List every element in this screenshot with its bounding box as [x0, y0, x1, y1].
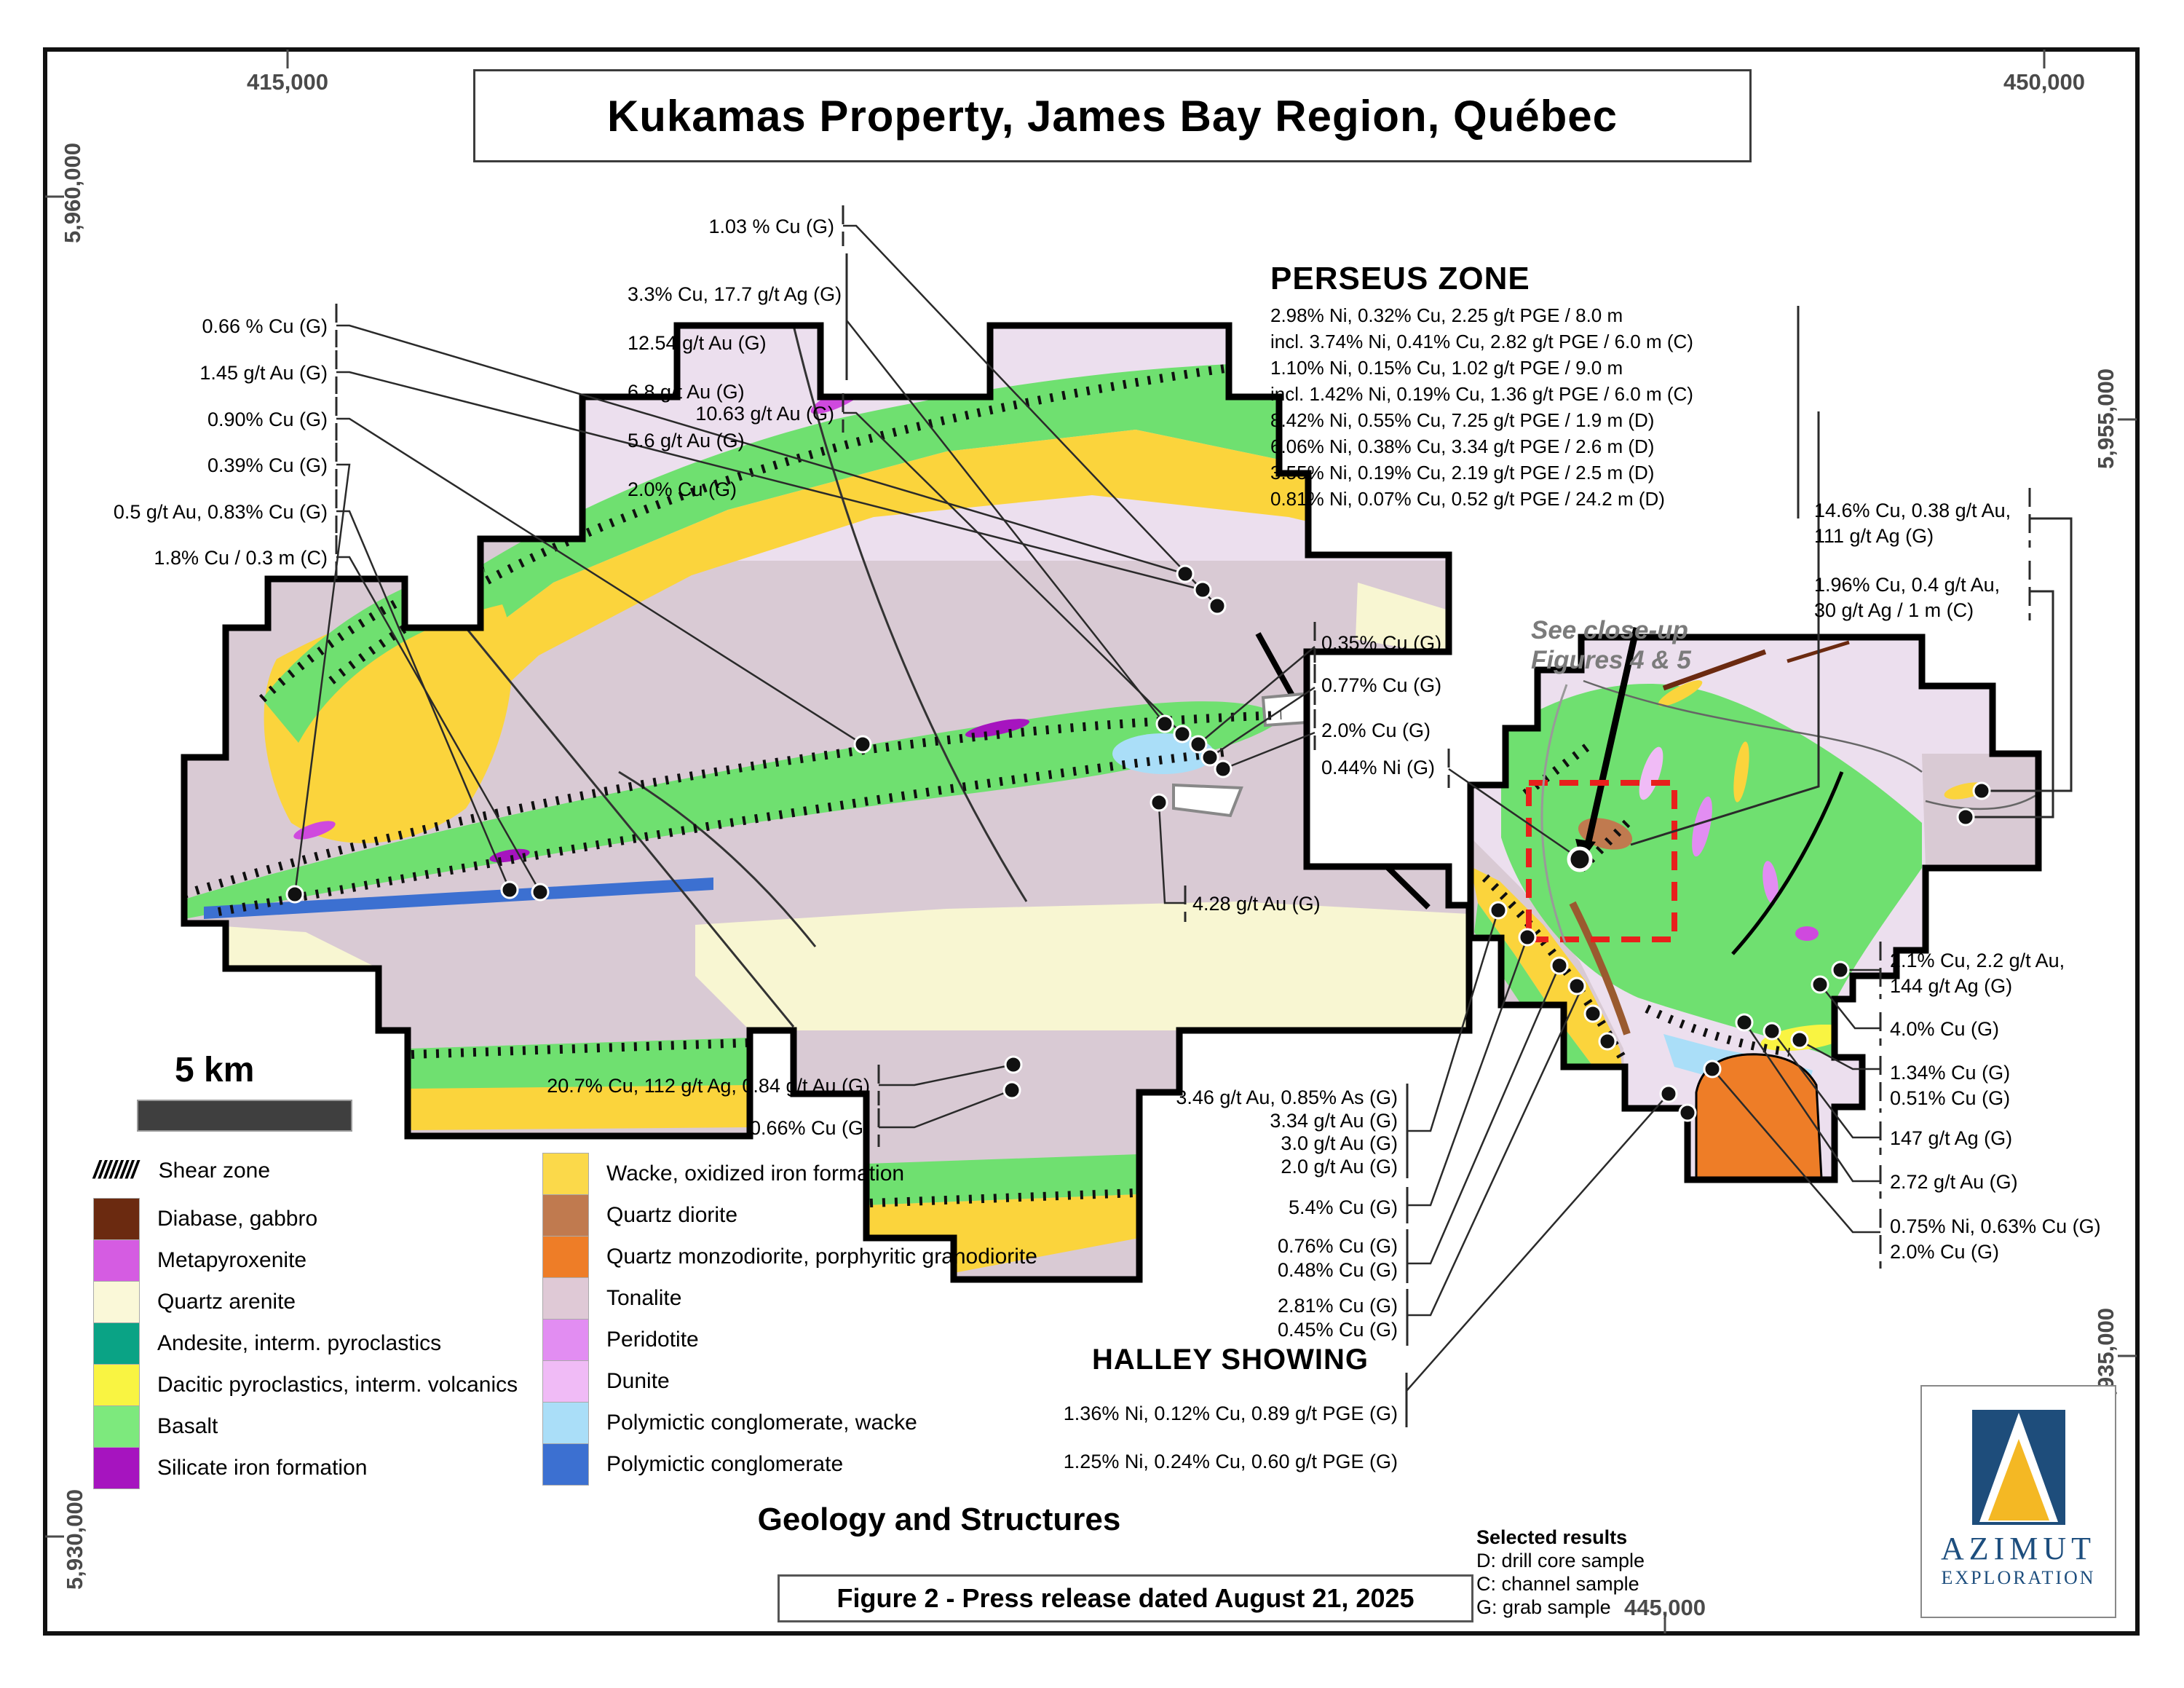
sample-label: 12.54 g/t Au (G): [628, 331, 842, 356]
sample-label: 1.8% Cu / 0.3 m (C): [36, 546, 328, 569]
legend-label: Shear zone: [159, 1159, 270, 1183]
close-up-note: See close-up Figures 4 & 5: [1531, 615, 1691, 675]
legend-row: Wacke, oxidized iron formation: [542, 1153, 904, 1195]
perseus-zone-title: PERSEUS ZONE: [1270, 261, 1530, 297]
assay-result: 0.81% Ni, 0.07% Cu, 0.52 g/t PGE / 24.2 …: [1270, 486, 1693, 512]
legend-row: Quartz arenite: [93, 1281, 296, 1323]
legend-row-shear: //////// Shear zone: [93, 1156, 270, 1185]
sample-label: 0.66% Cu (G): [462, 1116, 870, 1140]
legend-row: Peridotite: [542, 1319, 699, 1361]
sample-label: 5.6 g/t Au (G): [628, 429, 842, 454]
sample-label: 0.44% Ni (G): [1321, 756, 1435, 779]
sample-label: 0.66 % Cu (G): [36, 315, 328, 338]
sample-label: 4.28 g/t Au (G): [1192, 892, 1321, 915]
selected-results-item: C: channel sample: [1476, 1572, 1645, 1596]
legend-label: Dunite: [606, 1369, 670, 1394]
sample-label: 3.46 g/t Au, 0.85% As (G) 3.34 g/t Au (G…: [1019, 1086, 1398, 1178]
legend-row: Quartz diorite: [542, 1194, 737, 1237]
sample-label: 10.63 g/t Au (G): [616, 402, 834, 425]
selected-results-title: Selected results: [1476, 1526, 1645, 1549]
perseus-zone-results: 2.98% Ni, 0.32% Cu, 2.25 g/t PGE / 8.0 m…: [1270, 302, 1693, 512]
sample-label: 0.39% Cu (G): [36, 454, 328, 477]
legend-label: Tonalite: [606, 1286, 681, 1311]
sample-label: 0.35% Cu (G): [1321, 631, 1441, 655]
legend-swatch: [542, 1236, 589, 1278]
northing-label-5930000: 5,930,000: [62, 1459, 88, 1620]
scale-bar: [137, 1100, 352, 1132]
legend-row: Diabase, gabbro: [93, 1198, 317, 1240]
legend-label: Quartz arenite: [157, 1290, 296, 1314]
legend-label: Peridotite: [606, 1328, 699, 1352]
assay-result: incl. 1.42% Ni, 0.19% Cu, 1.36 g/t PGE /…: [1270, 381, 1693, 407]
legend-row: Dacitic pyroclastics, interm. volcanics: [93, 1364, 518, 1406]
legend-label: Quartz monzodiorite, porphyritic granodi…: [606, 1245, 1037, 1269]
legend-row: Metapyroxenite: [93, 1239, 306, 1282]
legend-swatch: [542, 1277, 589, 1320]
map-subtitle: Geology and Structures: [721, 1502, 1158, 1538]
legend-label: Andesite, interm. pyroclastics: [157, 1331, 441, 1356]
legend-label: Basalt: [157, 1414, 218, 1439]
figure-page: Kukamas Property, James Bay Region, Québ…: [0, 0, 2184, 1688]
legend-row: Andesite, interm. pyroclastics: [93, 1322, 441, 1365]
assay-result: 1.10% Ni, 0.15% Cu, 1.02 g/t PGE / 9.0 m: [1270, 355, 1693, 381]
legend-label: Metapyroxenite: [157, 1248, 306, 1273]
legend-row: Silicate iron formation: [93, 1447, 367, 1489]
legend-swatch: [542, 1360, 589, 1403]
sample-label-group: 3.3% Cu, 17.7 g/t Ag (G) 12.54 g/t Au (G…: [628, 258, 842, 526]
sample-label: 0.75% Ni, 0.63% Cu (G) 2.0% Cu (G): [1890, 1214, 2101, 1265]
legend-swatch: [93, 1239, 140, 1282]
title-box: Kukamas Property, James Bay Region, Québ…: [473, 69, 1752, 162]
sample-label: 1.34% Cu (G) 0.51% Cu (G): [1890, 1060, 2010, 1111]
legend-label: Quartz diorite: [606, 1203, 737, 1228]
legend-row: Basalt: [93, 1405, 218, 1448]
sample-label: 0.77% Cu (G): [1321, 674, 1441, 697]
perseus-sample-dot: [1569, 848, 1591, 870]
sample-label: 2.1% Cu, 2.2 g/t Au, 144 g/t Ag (G): [1890, 948, 2065, 999]
sample-label: 14.6% Cu, 0.38 g/t Au, 111 g/t Ag (G): [1814, 498, 2011, 549]
sample-label: 2.0% Cu (G): [1321, 719, 1431, 742]
legend-swatch: [93, 1281, 140, 1323]
assay-result: 8.42% Ni, 0.55% Cu, 7.25 g/t PGE / 1.9 m…: [1270, 407, 1693, 433]
legend-label: Polymictic conglomerate, wacke: [606, 1411, 917, 1435]
sample-label: 0.90% Cu (G): [36, 408, 328, 431]
legend-swatch: [542, 1153, 589, 1195]
legend-swatch: [542, 1443, 589, 1486]
legend-row: Polymictic conglomerate: [542, 1443, 843, 1486]
northing-label-5955000: 5,955,000: [2093, 339, 2119, 499]
selected-results-item: G: grab sample: [1476, 1596, 1645, 1619]
legend-label: Wacke, oxidized iron formation: [606, 1162, 904, 1186]
selected-results-item: D: drill core sample: [1476, 1549, 1645, 1572]
legend-label: Dacitic pyroclastics, interm. volcanics: [157, 1373, 518, 1397]
sample-label: 2.72 g/t Au (G): [1890, 1170, 2018, 1194]
halley-results: 1.36% Ni, 0.12% Cu, 0.89 g/t PGE (G) 1.2…: [1056, 1378, 1398, 1498]
assay-result: incl. 3.74% Ni, 0.41% Cu, 2.82 g/t PGE /…: [1270, 328, 1693, 355]
legend-label: Diabase, gabbro: [157, 1207, 317, 1231]
sample-label: 1.03 % Cu (G): [616, 215, 834, 238]
sample-label: 2.81% Cu (G) 0.45% Cu (G): [1019, 1294, 1398, 1342]
sample-label: 3.3% Cu, 17.7 g/t Ag (G): [628, 283, 842, 307]
legend-swatch: [93, 1198, 140, 1240]
shear-zone-icon: ////////: [93, 1156, 137, 1185]
sample-label: 147 g/t Ag (G): [1890, 1127, 2012, 1150]
page-title: Kukamas Property, James Bay Region, Québ…: [607, 91, 1618, 141]
assay-result: 6.06% Ni, 0.38% Cu, 3.34 g/t PGE / 2.6 m…: [1270, 433, 1693, 460]
easting-label-450000: 450,000: [1979, 69, 2110, 95]
sample-label: 20.7% Cu, 112 g/t Ag, 0.84 g/t Au (G): [462, 1074, 870, 1097]
legend-label: Polymictic conglomerate: [606, 1452, 843, 1477]
sample-label: 4.0% Cu (G): [1890, 1017, 1999, 1041]
assay-result: 2.98% Ni, 0.32% Cu, 2.25 g/t PGE / 8.0 m: [1270, 302, 1693, 328]
legend-swatch: [542, 1194, 589, 1237]
legend-swatch: [93, 1405, 140, 1448]
legend-label: Silicate iron formation: [157, 1456, 367, 1480]
figure-caption-box: Figure 2 - Press release dated August 21…: [778, 1574, 1473, 1622]
figure-caption: Figure 2 - Press release dated August 21…: [836, 1583, 1414, 1614]
azimut-mountain-icon: [1972, 1410, 2065, 1525]
logo-company: AZIMUT: [1922, 1530, 2115, 1567]
legend-row: Quartz monzodiorite, porphyritic granodi…: [542, 1236, 1037, 1278]
sample-label: 1.96% Cu, 0.4 g/t Au, 30 g/t Ag / 1 m (C…: [1814, 572, 2000, 623]
azimut-logo: AZIMUT EXPLORATION: [1920, 1385, 2116, 1618]
logo-division: EXPLORATION: [1922, 1567, 2115, 1589]
sample-label: 0.76% Cu (G) 0.48% Cu (G): [1019, 1234, 1398, 1282]
assay-result: 3.55% Ni, 0.19% Cu, 2.19 g/t PGE / 2.5 m…: [1270, 460, 1693, 486]
sample-label: 2.0% Cu (G): [628, 478, 842, 502]
legend-swatch: [93, 1447, 140, 1489]
legend-swatch: [93, 1364, 140, 1406]
sample-label: 5.4% Cu (G): [1019, 1196, 1398, 1219]
legend-swatch: [93, 1322, 140, 1365]
legend-row: Tonalite: [542, 1277, 681, 1320]
legend-swatch: [542, 1402, 589, 1444]
legend-row: Dunite: [542, 1360, 670, 1403]
sample-label: 0.5 g/t Au, 0.83% Cu (G): [36, 500, 328, 524]
legend-swatch: [542, 1319, 589, 1361]
scale-label: 5 km: [175, 1050, 254, 1090]
easting-label-415000: 415,000: [222, 69, 353, 95]
assay-result: 1.25% Ni, 0.24% Cu, 0.60 g/t PGE (G): [1056, 1450, 1398, 1474]
selected-results: Selected results D: drill core sample C:…: [1476, 1526, 1645, 1619]
sample-label: 1.45 g/t Au (G): [36, 361, 328, 384]
assay-result: 1.36% Ni, 0.12% Cu, 0.89 g/t PGE (G): [1056, 1402, 1398, 1426]
halley-showing-title: HALLEY SHOWING: [1056, 1344, 1405, 1376]
legend-row: Polymictic conglomerate, wacke: [542, 1402, 917, 1444]
sample-label: 6.8 g/t Au (G): [628, 380, 842, 405]
northing-label-5960000: 5,960,000: [60, 113, 86, 273]
